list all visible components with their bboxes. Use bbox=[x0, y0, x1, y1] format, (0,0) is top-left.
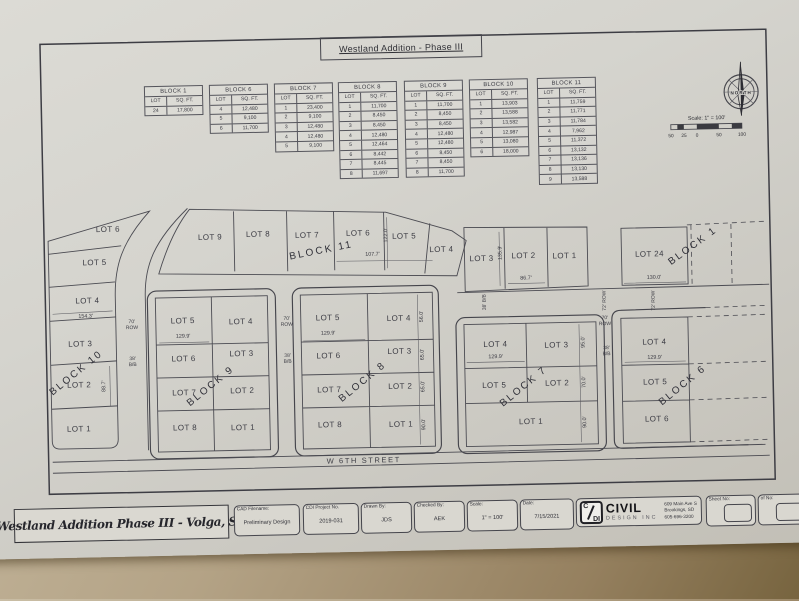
lot-cell: 5 bbox=[340, 141, 362, 150]
sqft-cell: 8,450 bbox=[428, 148, 463, 157]
company-cell: C DI CIVIL DESIGN INC 609 Main Ave S Bro… bbox=[576, 496, 703, 528]
table-block-1: BLOCK 1LOTSQ. FT.2417,800 bbox=[144, 85, 204, 116]
sqft-cell: 8,442 bbox=[362, 150, 397, 159]
of-no-box bbox=[776, 503, 799, 522]
logo-letter-top: C bbox=[583, 503, 588, 510]
block9-dim bbox=[159, 342, 209, 343]
table-block-9: BLOCK 9LOTSQ. FT.111,70028,45038,450412,… bbox=[404, 80, 465, 179]
lot-cell: 5 bbox=[471, 138, 493, 147]
block1-dashed-boundary bbox=[687, 221, 765, 285]
block6-boundary bbox=[612, 307, 749, 449]
scale-tick: 25 bbox=[681, 133, 687, 139]
sqft-cell: 12,480 bbox=[298, 132, 333, 141]
scale-bar: Scale: 1" = 100' 50 25 0 50 100 bbox=[668, 115, 746, 140]
lot-cell: 3 bbox=[340, 121, 362, 130]
scale-tick: 50 bbox=[668, 133, 674, 139]
block8-lot-lines bbox=[300, 292, 435, 449]
sqft-cell: 8,450 bbox=[428, 158, 463, 167]
sqft-cell: 18,000 bbox=[493, 147, 528, 156]
cad-filename-cell: CAD Filename: Preliminary Design bbox=[234, 504, 301, 536]
sqft-cell: SQ. FT. bbox=[167, 96, 202, 105]
lot-cell: 8 bbox=[407, 168, 429, 177]
lot-cell: 3 bbox=[406, 120, 428, 129]
lot-cell: 3 bbox=[471, 119, 493, 128]
sqft-cell: 8,450 bbox=[362, 121, 397, 130]
lot-cell: 3 bbox=[276, 123, 298, 132]
lot-cell: 1 bbox=[470, 100, 492, 109]
sqft-cell: 13,130 bbox=[562, 165, 597, 174]
cell-label: Scale: bbox=[470, 502, 483, 507]
sqft-cell: 13,903 bbox=[492, 99, 527, 108]
cell-value: Preliminary Design bbox=[235, 519, 299, 526]
lot-cell: 8 bbox=[341, 169, 363, 178]
lot-cell: 4 bbox=[406, 130, 428, 139]
lot-cell: 7 bbox=[539, 156, 561, 165]
sqft-cell: 11,700 bbox=[361, 102, 396, 111]
table-block-8: BLOCK 8LOTSQ. FT.111,70028,45038,450412,… bbox=[338, 81, 399, 180]
cell-value: 7/15/2021 bbox=[521, 513, 573, 520]
lot-cell: 1 bbox=[275, 104, 297, 113]
sqft-cell: 12,480 bbox=[298, 122, 333, 131]
lot-cell: 24 bbox=[145, 106, 167, 115]
project-no-cell: CDI Project No. 2019-031 bbox=[303, 503, 360, 535]
sqft-cell: 11,784 bbox=[561, 117, 596, 126]
lot-cell: 2 bbox=[470, 109, 492, 118]
lot-cell: 7 bbox=[406, 158, 428, 167]
sqft-cell: 11,700 bbox=[427, 100, 462, 109]
sqft-cell: 12,480 bbox=[362, 130, 397, 139]
lot-row: 618,000 bbox=[471, 147, 528, 157]
lot-cell: 6 bbox=[340, 150, 362, 159]
sqft-cell: SQ. FT. bbox=[492, 89, 527, 98]
block10-outline bbox=[48, 211, 155, 449]
cdi-logo-icon: C DI bbox=[580, 501, 603, 524]
block9-lot-lines bbox=[155, 296, 270, 452]
lot-cell: 6 bbox=[406, 149, 428, 158]
lot-cell: 7 bbox=[340, 160, 362, 169]
lot-row: 611,700 bbox=[211, 123, 268, 133]
cell-label: of No: bbox=[761, 496, 774, 501]
lot-cell: LOT bbox=[210, 95, 232, 104]
sqft-cell: 13,136 bbox=[561, 155, 596, 164]
block11-outline bbox=[157, 204, 466, 282]
lot-cell: 5 bbox=[539, 136, 561, 145]
sqft-cell: SQ. FT. bbox=[232, 95, 267, 104]
paper-sheet: NORTH Scale: 1" = 100' 50 25 0 50 100 We… bbox=[0, 0, 799, 560]
cell-value: AEK bbox=[415, 516, 464, 523]
lot-cell: 4 bbox=[276, 132, 298, 141]
lot-row: 59,100 bbox=[276, 141, 333, 151]
sqft-cell: 13,080 bbox=[493, 137, 528, 146]
lot-cell: 2 bbox=[339, 112, 361, 121]
block7-dims bbox=[466, 324, 581, 444]
cell-value: 2019-031 bbox=[304, 518, 358, 525]
lot-cell: 9 bbox=[540, 175, 562, 184]
checked-by-cell: Checked By: AEK bbox=[414, 501, 466, 533]
company-subname: DESIGN INC bbox=[606, 515, 658, 521]
lot-cell: 1 bbox=[538, 98, 560, 107]
curved-road-edge bbox=[143, 208, 192, 450]
sqft-cell: 13,582 bbox=[493, 118, 528, 127]
table-block-7: BLOCK 7LOTSQ. FT.123,40029,100312,480412… bbox=[274, 82, 334, 152]
company-address: 609 Main Ave S Brookings, SD 605-696-320… bbox=[664, 501, 697, 521]
block8-dims bbox=[302, 295, 420, 447]
cell-label: Checked By: bbox=[417, 503, 444, 509]
sqft-cell: 11,372 bbox=[561, 136, 596, 145]
sqft-cell: 13,588 bbox=[492, 108, 527, 117]
lot-cell: LOT bbox=[275, 94, 297, 103]
sqft-cell: 12,480 bbox=[428, 139, 463, 148]
lot-cell: 5 bbox=[276, 142, 298, 151]
lot-cell: 2 bbox=[538, 108, 560, 117]
sqft-cell: 13,588 bbox=[562, 174, 597, 183]
sqft-cell: 9,100 bbox=[297, 112, 332, 121]
lot-cell: 1 bbox=[339, 102, 361, 111]
of-no-cell: of No: bbox=[758, 493, 799, 525]
scale-tick: 0 bbox=[696, 133, 699, 139]
logo-letter-bottom: DI bbox=[593, 516, 600, 523]
lot-cell: LOT bbox=[145, 97, 167, 106]
lot-cell: 4 bbox=[471, 128, 493, 137]
sqft-cell: 9,100 bbox=[298, 141, 333, 150]
block10-lot-lines bbox=[48, 246, 124, 409]
lot24-outline bbox=[621, 227, 688, 285]
block7-lot-lines bbox=[464, 322, 598, 404]
lot-cell: LOT bbox=[538, 89, 560, 98]
block6-dim bbox=[625, 361, 686, 362]
lot-row: 913,588 bbox=[540, 174, 597, 184]
sqft-cell: SQ. FT. bbox=[560, 88, 595, 97]
sqft-cell: 12,987 bbox=[493, 128, 528, 137]
block7-lots bbox=[464, 322, 599, 447]
lot-row: 2417,800 bbox=[145, 106, 202, 116]
sheet-no-cell: Sheet No: bbox=[706, 495, 757, 527]
lot-cell: 6 bbox=[471, 148, 493, 157]
cell-label: Date: bbox=[523, 501, 535, 506]
project-name: Westland Addition Phase III - Volga, SD bbox=[0, 514, 247, 533]
sqft-cell: SQ. FT. bbox=[297, 93, 332, 102]
cell-label: Sheet No: bbox=[709, 497, 730, 502]
compass-north-label: NORTH bbox=[730, 90, 751, 95]
table-block-10: BLOCK 10LOTSQ. FT.113,903213,588313,5824… bbox=[469, 78, 530, 157]
sqft-cell: 11,759 bbox=[560, 97, 595, 106]
lot-cell: LOT bbox=[470, 90, 492, 99]
sqft-cell: 11,700 bbox=[429, 167, 464, 176]
sqft-cell: 13,132 bbox=[561, 145, 596, 154]
drawing-content: NORTH Scale: 1" = 100' 50 25 0 50 100 We… bbox=[0, 0, 799, 600]
sqft-cell: 17,800 bbox=[167, 106, 202, 115]
photographed-plat-sheet: { "sheet_title": "Westland Addition - Ph… bbox=[0, 0, 799, 599]
scale-bar-segment bbox=[697, 124, 719, 129]
scale-label: Scale: 1" = 100' bbox=[688, 115, 726, 122]
lot-row: 811,700 bbox=[407, 167, 464, 177]
lot-row: 811,697 bbox=[341, 169, 398, 179]
lot-cell: 6 bbox=[211, 124, 233, 133]
scale-bar-segment bbox=[732, 123, 742, 128]
company-name: CIVIL bbox=[606, 502, 658, 516]
lot-cell: 5 bbox=[210, 115, 232, 124]
sqft-cell: 8,445 bbox=[362, 159, 397, 168]
sqft-cell: 8,450 bbox=[361, 111, 396, 120]
block11-east-lots bbox=[464, 225, 588, 292]
lot-cell: 6 bbox=[539, 146, 561, 155]
lot-cell: LOT bbox=[339, 93, 361, 102]
sqft-cell: 23,400 bbox=[297, 103, 332, 112]
sqft-cell: 7,962 bbox=[561, 126, 596, 135]
sheet-no-box bbox=[724, 504, 752, 523]
cell-value: 1" = 100' bbox=[468, 515, 517, 522]
sqft-cell: 11,700 bbox=[233, 123, 268, 132]
sqft-cell: SQ. FT. bbox=[361, 92, 396, 101]
table-block-11: BLOCK 11LOTSQ. FT.111,759211,771311,7844… bbox=[537, 77, 598, 185]
sheet-title-box: Westland Addition - Phase III bbox=[320, 34, 482, 60]
lot-cell: 5 bbox=[406, 139, 428, 148]
sqft-cell: 12,480 bbox=[232, 104, 267, 113]
scale-tick: 50 bbox=[716, 132, 722, 138]
lot-cell: 4 bbox=[340, 131, 362, 140]
cell-label: CDI Project No. bbox=[306, 505, 339, 511]
block6-lot-lines bbox=[621, 317, 691, 443]
lot-cell: 8 bbox=[540, 165, 562, 174]
lot-cell: 2 bbox=[275, 113, 297, 122]
lot-cell: 3 bbox=[539, 117, 561, 126]
sqft-cell: 12,464 bbox=[362, 140, 397, 149]
cell-label: CAD Filename: bbox=[237, 507, 270, 513]
sqft-cell: 8,450 bbox=[427, 110, 462, 119]
compass-rose: NORTH bbox=[723, 61, 758, 116]
row-road-edge bbox=[457, 284, 769, 293]
sqft-cell: 11,697 bbox=[363, 169, 398, 178]
block10-dim-lines bbox=[53, 311, 115, 407]
company-name-stack: CIVIL DESIGN INC bbox=[606, 502, 658, 522]
sqft-cell: 8,450 bbox=[428, 119, 463, 128]
sqft-cell: 11,771 bbox=[560, 107, 595, 116]
sqft-cell: SQ. FT. bbox=[427, 91, 462, 100]
scale-bar-segment bbox=[677, 124, 684, 129]
scale-tick: 100 bbox=[738, 132, 746, 138]
block6-dashed-extensions bbox=[688, 305, 771, 442]
east-dim-lines bbox=[499, 228, 686, 286]
sqft-cell: 12,480 bbox=[428, 129, 463, 138]
cell-label: Drawn By: bbox=[364, 504, 386, 509]
table-block-6: BLOCK 6LOTSQ. FT.412,48059,100611,700 bbox=[209, 84, 269, 135]
block7-boundary bbox=[456, 315, 607, 454]
lot-cell: LOT bbox=[405, 91, 427, 100]
project-name-cell: Westland Addition Phase III - Volga, SD bbox=[14, 505, 230, 543]
date-cell: Date: 7/15/2021 bbox=[520, 498, 575, 530]
lot-cell: 1 bbox=[405, 101, 427, 110]
block8-boundary bbox=[292, 285, 441, 456]
address-line: 605-696-3200 bbox=[664, 513, 697, 520]
lot-cell: 4 bbox=[210, 105, 232, 114]
scale-cell: Scale: 1" = 100' bbox=[467, 500, 519, 532]
block11-lot-lines bbox=[234, 207, 431, 277]
sqft-cell: 9,100 bbox=[232, 114, 267, 123]
sheet-title: Westland Addition - Phase III bbox=[339, 41, 463, 54]
cell-value: JDS bbox=[362, 517, 411, 524]
lot-cell: 4 bbox=[539, 127, 561, 136]
lot-cell: 2 bbox=[405, 111, 427, 120]
drawn-by-cell: Drawn By: JDS bbox=[361, 502, 413, 534]
